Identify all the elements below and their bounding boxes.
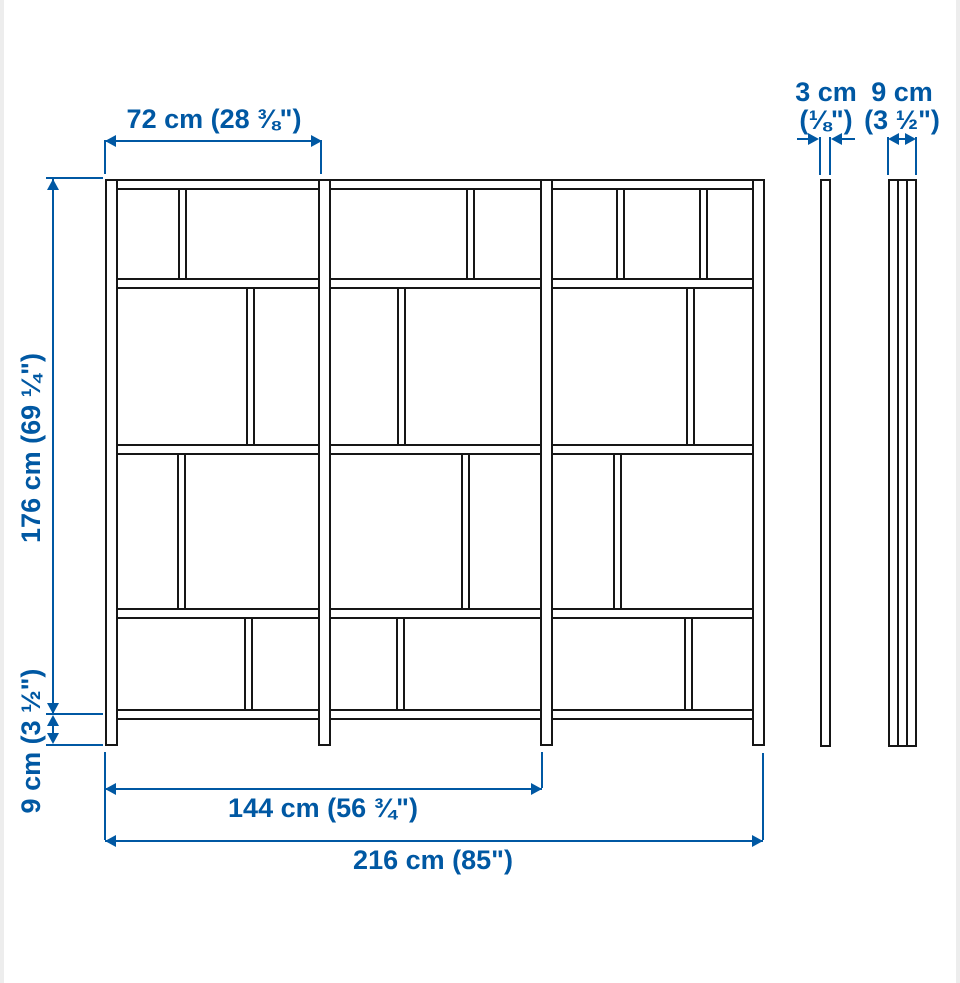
extension-tick [46, 177, 103, 179]
compartment-divider [616, 190, 625, 278]
dimension-line [105, 788, 542, 790]
arrow-left-icon [831, 133, 842, 145]
compartment-divider [684, 619, 693, 709]
total-width-label: 216 cm (85") [283, 846, 583, 874]
total-height-label: 176 cm (69 ¼") [17, 298, 45, 598]
base-height-label: 9 cm (3 ½") [17, 591, 45, 891]
dimension-line [52, 179, 54, 714]
compartment-divider [397, 289, 406, 444]
extension-tick [104, 752, 106, 840]
extension-tick [829, 137, 831, 175]
dimension-line [105, 140, 322, 142]
shelf-rail [105, 444, 765, 455]
extension-tick [46, 744, 103, 746]
left-edge-gutter [0, 0, 4, 983]
arrow-up-icon [47, 179, 59, 190]
extension-tick [887, 137, 889, 175]
compartment-divider [613, 455, 622, 608]
shelf-rail [105, 278, 765, 289]
compartment-divider [246, 289, 255, 444]
extension-tick [819, 137, 821, 175]
compartment-divider [396, 619, 405, 709]
frame-post [318, 179, 331, 746]
arrow-down-icon [47, 733, 59, 744]
frame-post [752, 179, 765, 746]
arrow-left-icon [888, 133, 899, 145]
frame-post [105, 179, 118, 746]
arrow-left-icon [105, 135, 116, 147]
deep-panel-inner-line [897, 181, 899, 745]
compartment-divider [177, 455, 186, 608]
extension-tick [104, 140, 106, 174]
compartment-divider [466, 190, 475, 278]
depth-cm-label: 9 cm [842, 78, 960, 106]
shelf-rail [105, 179, 765, 190]
compartment-divider [178, 190, 187, 278]
extension-tick [915, 137, 917, 175]
product-dimension-diagram: 72 cm (28 ⅜") 176 cm (69 ¼") 9 cm (3 ½")… [0, 0, 960, 983]
shelf-rail [105, 608, 765, 619]
extension-tick [762, 753, 764, 840]
section-width-label: 72 cm (28 ⅜") [94, 105, 334, 133]
deep-panel-side-view [888, 179, 917, 747]
arrow-up-icon [47, 715, 59, 726]
arrow-tail [842, 138, 855, 140]
thin-panel-side-view [820, 179, 831, 747]
arrow-left-icon [105, 835, 116, 847]
depth-in-label: (3 ½") [842, 106, 960, 134]
deep-panel-inner-line [906, 181, 908, 745]
shelf-rail [105, 709, 765, 720]
arrow-right-icon [808, 133, 819, 145]
compartment-divider [461, 455, 470, 608]
extension-tick [320, 140, 322, 174]
two-section-width-label: 144 cm (56 ¾") [173, 794, 473, 822]
dimension-line [105, 840, 763, 842]
arrow-left-icon [105, 783, 116, 795]
compartment-divider [244, 619, 253, 709]
frame-post [540, 179, 553, 746]
extension-tick [541, 752, 543, 788]
compartment-divider [699, 190, 708, 278]
compartment-divider [686, 289, 695, 444]
right-edge-gutter [956, 0, 960, 983]
